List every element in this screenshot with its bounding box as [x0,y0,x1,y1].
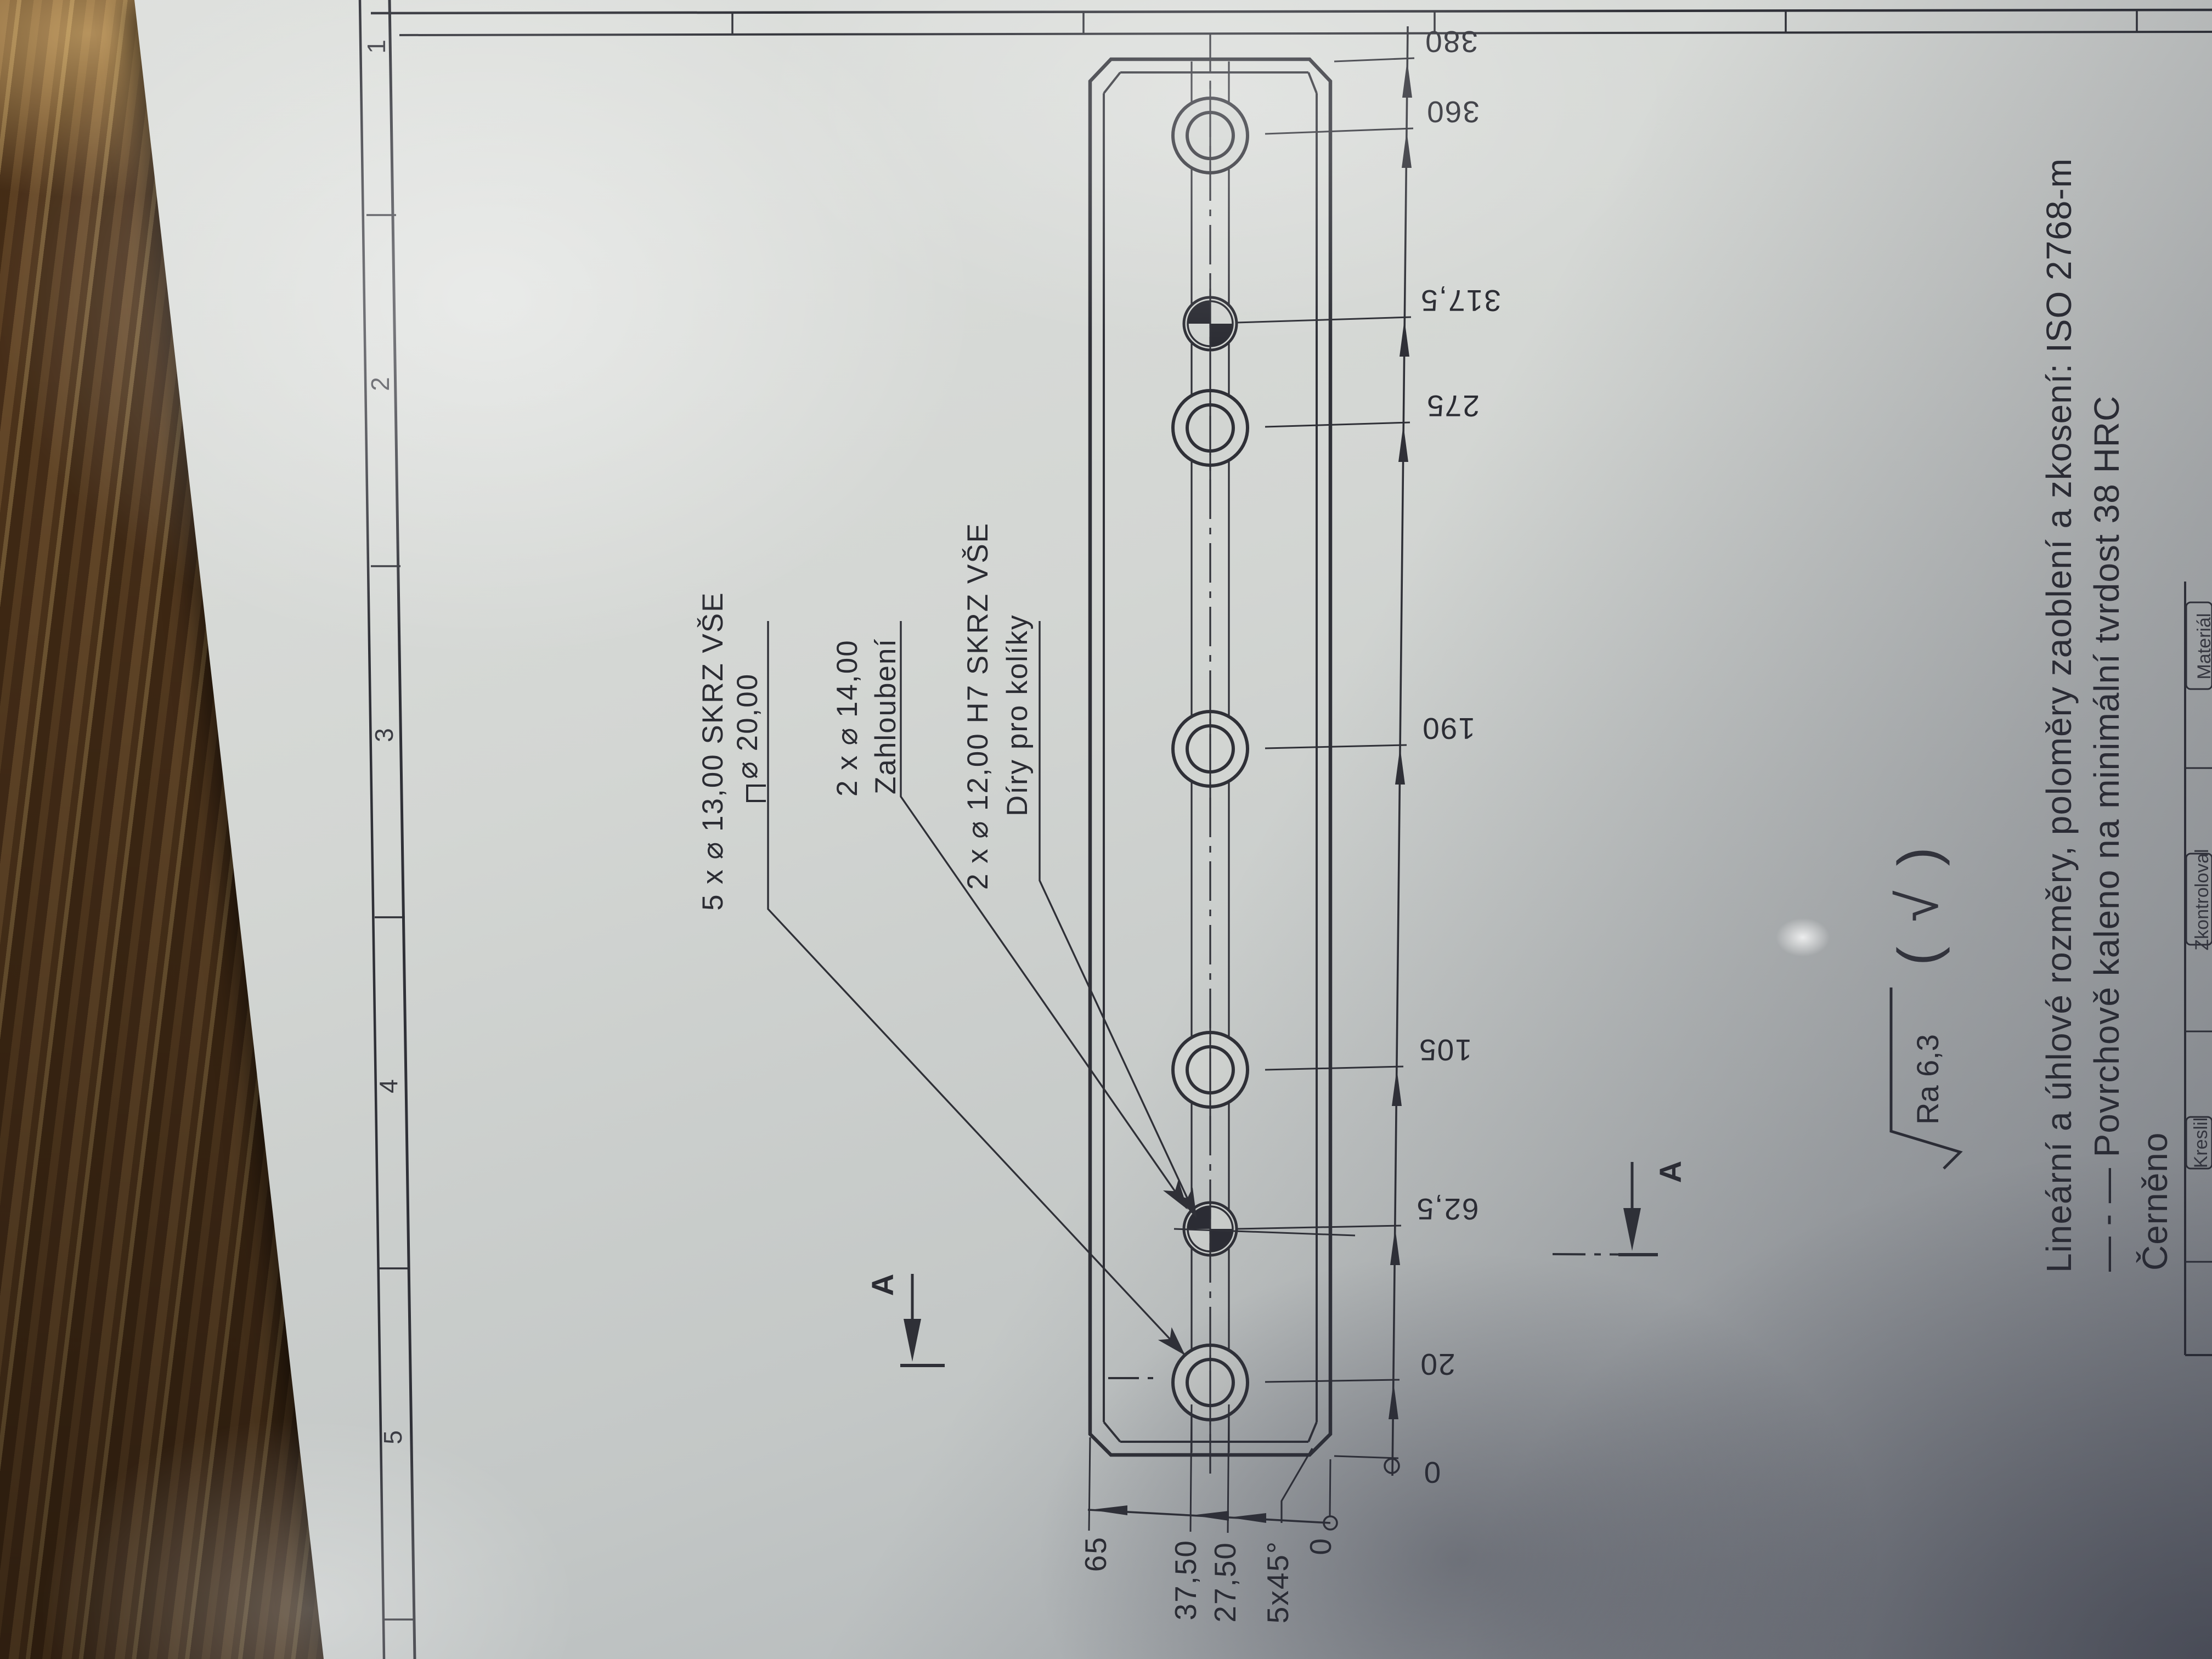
note-tolerances: Lineární a úhlové rozměry, poloměry zaob… [2039,158,2079,1273]
note-hardening: — - — Povrchově kaleno na minimální tvrd… [2087,396,2126,1272]
zone-number-2: 2 [366,377,394,391]
dim-62_5: 62,5 [1415,1192,1479,1226]
zone-number-5: 5 [379,1430,407,1444]
callout-spotface-line1: 2 x ⌀ 14,00 [831,639,864,797]
titleblock-checked-by: Zkontroloval [2192,849,2212,950]
dim-0: 0 [1423,1455,1441,1489]
dim-317_5: 317,5 [1420,284,1501,318]
section-cut-A: A A [865,1161,1688,1378]
dim-190: 190 [1421,712,1475,746]
roughness-symbol: Ra 6,3 [1891,988,1960,1169]
chamfer-leader [1282,1448,1312,1523]
dim-37_50: 37,50 [1169,1539,1203,1621]
dim-380: 380 [1424,25,1478,59]
dim-width-0: 0 [1304,1537,1338,1555]
surface-finish: Ra 6,3 ( √ ) [1887,843,1960,1169]
general-notes: Lineární a úhlové rozměry, poloměry zaob… [2039,158,2175,1273]
callout-dowel-line1: 2 x ⌀ 12,00 H7 SKRZ VŠE [962,522,994,890]
titleblock-material: Materiál [2194,613,2212,680]
dim-27_50: 27,50 [1208,1542,1242,1623]
roughness-value: Ra 6,3 [1910,1034,1945,1125]
dim-65: 65 [1079,1536,1113,1572]
note-finish: Černěno [2135,1132,2175,1271]
zone-number-3: 3 [370,728,398,742]
dim-5x45: 5x45° [1261,1541,1295,1623]
callout-counterbore-line1: 5 x ⌀ 13,00 SKRZ VŠE [697,591,729,911]
titleblock-drawn-by: Kreslil [2191,1118,2211,1169]
callout-counterbore-line2: ⌀ 20,00 [731,673,764,779]
leader-dowel [1040,621,1196,1217]
callout-dowel-line2: Díry pro kolíky [1001,614,1034,816]
counterbore-icon [747,786,766,801]
photo-of-technical-drawing: 1 2 3 4 5 [0,0,2212,1659]
leader-spotface [901,621,1187,1208]
hole-callouts: 5 x ⌀ 13,00 SKRZ VŠE ⌀ 20,00 2 x ⌀ 14,00… [697,522,1196,1354]
section-arrow-left: A [865,1274,945,1365]
engineering-drawing: 1 2 3 4 5 [0,0,2212,1659]
dim-105: 105 [1418,1033,1472,1067]
section-arrow-right: A [1618,1161,1688,1255]
section-label-right: A [1653,1161,1688,1183]
zone-number-1: 1 [362,39,391,54]
section-label-left: A [865,1274,900,1296]
sheet-frame: 1 2 3 4 5 [360,0,2212,1659]
callout-spotface-line2: Zahloubení [870,638,902,794]
dim-20: 20 [1419,1347,1455,1381]
dim-275: 275 [1426,389,1480,423]
dim-360: 360 [1426,95,1480,129]
running-dimensions-length: 380 360 317,5 275 190 105 62,5 20 0 [1237,25,1501,1489]
zone-number-4: 4 [374,1079,403,1093]
title-block: Kreslil Zkontroloval Materiál [2185,582,2212,1355]
basic-surface-symbol: ( √ ) [1887,843,1950,966]
